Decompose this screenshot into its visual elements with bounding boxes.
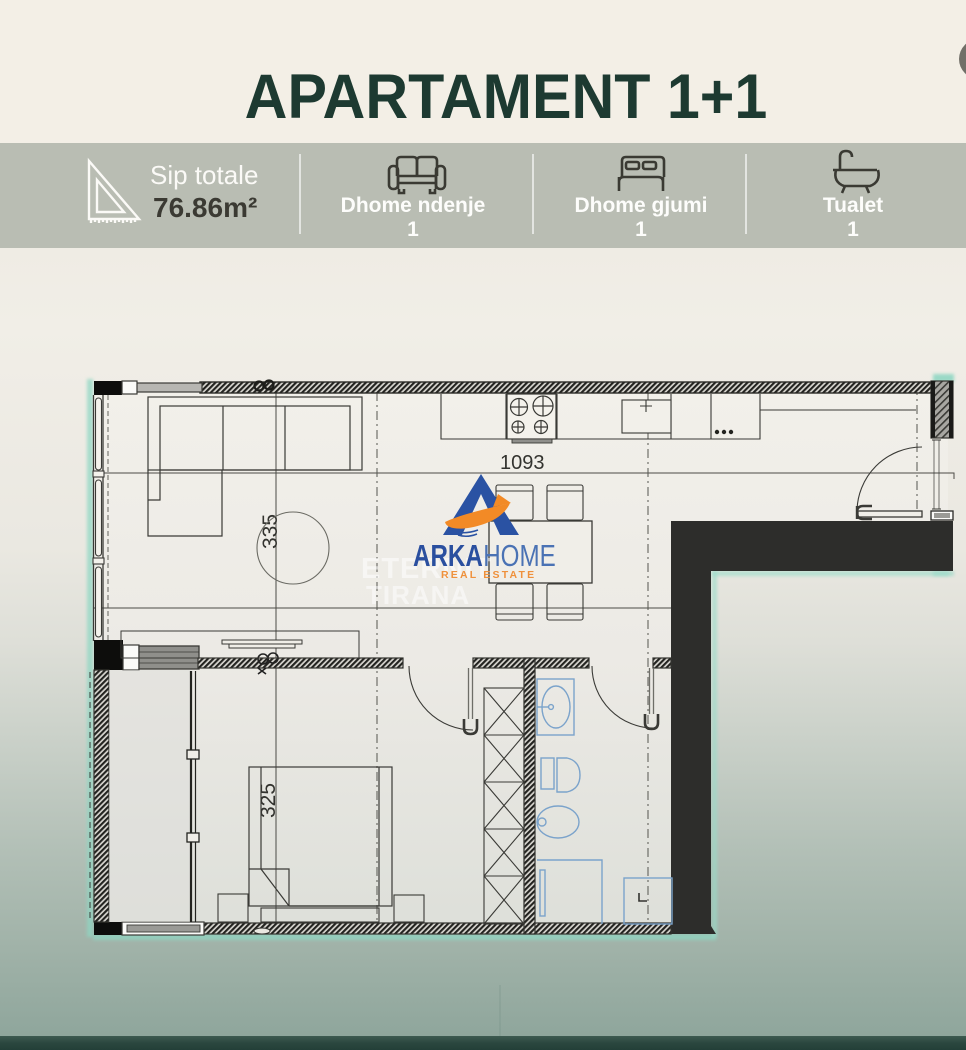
- svg-text:ARKA: ARKA: [413, 538, 483, 573]
- svg-text:1093: 1093: [500, 452, 545, 474]
- svg-text:TIRANA: TIRANA: [366, 580, 470, 610]
- svg-text:REAL ESTATE: REAL ESTATE: [441, 569, 536, 581]
- svg-text:HOME: HOME: [483, 538, 555, 573]
